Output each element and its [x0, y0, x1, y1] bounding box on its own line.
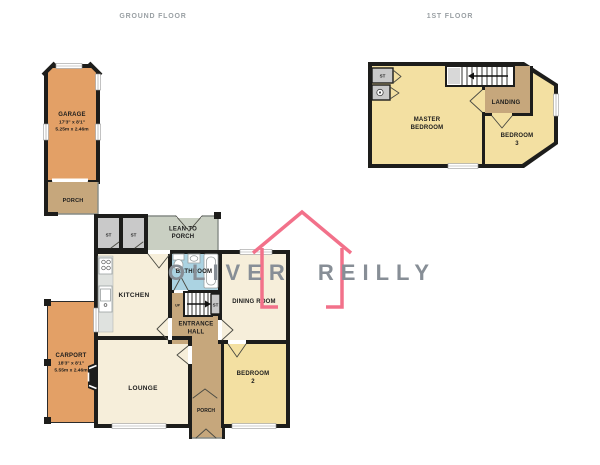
carport-dims-ft: 18'3" x 8'1"	[58, 361, 84, 367]
staircase-first	[446, 66, 514, 86]
hall-corridor-floor	[192, 344, 222, 398]
room-garage-porch: PORCH	[44, 182, 98, 216]
garage-dims-m: 5.25m x 2.46m	[55, 127, 89, 133]
room-garage: GARAGE 17'3" x 8'1" 5.25m x 2.46m	[43, 63, 101, 196]
room-carport: CARPORT 18'3" x 8'1" 5.55m x 2.46m	[44, 299, 95, 424]
watermark-house-roof	[253, 212, 351, 253]
master-bedroom-label-2: BEDROOM	[411, 125, 444, 131]
lounge-label: LOUNGE	[128, 385, 158, 392]
room-lean-to-porch: LEAN-TO PORCH	[148, 212, 221, 250]
kitchen-fixtures	[98, 256, 113, 332]
garage-porch-label: PORCH	[63, 198, 84, 204]
st-label: ST	[380, 74, 386, 79]
first-floor-title: 1ST FLOOR	[427, 13, 473, 20]
watermark-brand-text: OLIVER REILLY	[168, 260, 436, 285]
entrance-hall-label-2: HALL	[188, 330, 205, 336]
hob	[99, 258, 112, 274]
bedroom2-label-2: 2	[251, 379, 255, 385]
bedroom3-label-2: 3	[515, 141, 519, 147]
front-porch-floor	[192, 398, 222, 438]
garage-dims-ft: 17'3" x 8'1"	[59, 120, 85, 126]
st-label: ST	[213, 303, 219, 308]
bedroom3-label-1: BEDROOM	[501, 133, 534, 139]
carport-post	[44, 417, 51, 424]
dining-label: DINING ROOM	[232, 299, 276, 305]
master-bedroom-label-1: MASTER	[414, 117, 441, 123]
up-label: UP	[175, 304, 180, 308]
landing-label: LANDING	[492, 100, 521, 106]
garage-label: GARAGE	[58, 112, 86, 118]
floorplan-canvas: GROUND FLOOR 1ST FLOOR GARAGE 17'3" x 8'…	[0, 0, 600, 465]
carport-label: CARPORT	[55, 353, 86, 359]
carport-post	[44, 359, 51, 366]
st-label: ST	[106, 233, 112, 238]
carport-post	[44, 299, 51, 306]
ground-floor-title: GROUND FLOOR	[119, 13, 186, 20]
lean-to-label-2: PORCH	[172, 234, 195, 240]
entrance-hall-label-1: ENTRANCE	[179, 322, 214, 328]
first-floor-plan: ST MASTER BEDROOM LANDING BEDROOM 3	[368, 62, 559, 169]
lean-to-label-1: LEAN-TO	[169, 227, 197, 233]
bedroom2-floor	[224, 344, 286, 424]
st-label: ST	[131, 233, 137, 238]
bedroom2-label-1: BEDROOM	[237, 371, 270, 377]
kitchen-label: KITCHEN	[119, 292, 150, 299]
front-porch-label: PORCH	[197, 408, 215, 414]
carport-dims-m: 5.55m x 2.46m	[54, 368, 88, 374]
lounge-floor	[98, 340, 188, 424]
lean-to-floor	[148, 216, 218, 250]
